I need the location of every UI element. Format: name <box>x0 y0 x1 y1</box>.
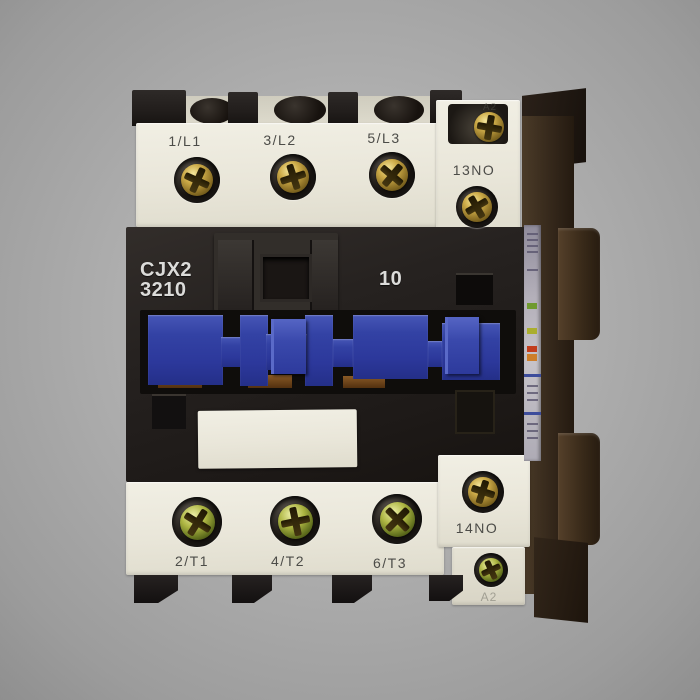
side-label-text-line <box>527 437 538 439</box>
contact-carrier-link <box>333 339 353 367</box>
side-label-text-line <box>527 430 538 432</box>
terminal-hole-2T1 <box>172 497 222 547</box>
mount-tab <box>134 575 178 603</box>
side-label-divider <box>524 412 541 415</box>
contact-carrier-tab <box>445 317 479 374</box>
phillips-screw <box>181 164 213 196</box>
coil-terminal-hole-top <box>472 110 506 144</box>
side-label-orange-mark <box>527 354 537 361</box>
mount-tab <box>332 575 372 603</box>
housing-square-recess <box>455 390 495 434</box>
phillips-screw <box>376 159 408 191</box>
aux-terminal-label-14NO: 14NO <box>456 520 499 536</box>
side-label-text-line <box>527 399 538 401</box>
phillips-screw <box>380 502 415 537</box>
clamp-screw-top <box>374 96 424 124</box>
housing-square-recess <box>260 254 312 302</box>
terminal-hole-4T2 <box>270 496 320 546</box>
side-label-text-line <box>527 251 538 253</box>
aux-terminal-hole-13NO <box>456 186 498 228</box>
side-label-yellow-mark <box>527 328 537 334</box>
side-label-text-line <box>527 423 538 425</box>
mount-tab <box>328 92 358 126</box>
terminal-hole-5L3 <box>369 152 415 198</box>
housing-boss-rib <box>310 240 338 310</box>
side-label-text-line <box>527 239 538 241</box>
contact-carrier-segment <box>353 315 428 379</box>
housing-square-hole <box>456 273 493 305</box>
contactor-product-photo: 1/L1 3/L2 5/L3 A2 13NO CJX2 3210 10 <box>126 88 604 618</box>
side-label-text-line <box>527 245 538 247</box>
side-label-red-mark <box>527 346 537 352</box>
side-spec-label <box>524 225 541 461</box>
phillips-screw <box>479 558 503 582</box>
model-text: CJX2 3210 <box>140 260 192 300</box>
phillips-screw <box>462 192 491 221</box>
phillips-screw <box>277 161 309 193</box>
contact-carrier-link <box>428 341 442 367</box>
aux-terminal-label-13NO: 13NO <box>453 162 496 178</box>
mount-tab <box>232 575 272 603</box>
terminal-label-1L1: 1/L1 <box>168 133 201 149</box>
model-line2: 3210 <box>140 280 192 300</box>
terminal-label-6T3: 6/T3 <box>373 555 407 571</box>
contact-carrier-segment <box>305 315 333 386</box>
terminal-label-2T1: 2/T1 <box>175 553 209 569</box>
clamp-screw-top <box>274 96 326 124</box>
aux-rating-text: 10 <box>379 269 402 289</box>
phillips-screw <box>474 112 505 143</box>
terminal-hole-1L1 <box>174 157 220 203</box>
terminal-label-4T2: 4/T2 <box>271 553 305 569</box>
side-label-green-mark <box>527 303 537 309</box>
side-label-text-line <box>527 385 538 387</box>
terminal-hole-3L2 <box>270 154 316 200</box>
contact-carrier-tab <box>271 319 306 374</box>
side-mount-clip-bottom <box>558 433 600 545</box>
mount-tab <box>132 90 186 126</box>
terminal-hole-6T3 <box>372 494 422 544</box>
contact-carrier-segment <box>148 315 223 385</box>
side-mount-clip-top <box>558 228 600 340</box>
aux-terminal-hole-14NO <box>462 471 504 513</box>
mount-tab <box>228 92 258 126</box>
phillips-screw <box>180 505 215 540</box>
contact-carrier-link <box>221 337 242 367</box>
side-label-text-line <box>527 233 538 235</box>
housing-boss-rib <box>218 240 254 310</box>
terminal-label-5L3: 5/L3 <box>367 130 400 146</box>
contact-carrier-segment <box>240 315 268 386</box>
coil-terminal-label-top: A2 <box>483 102 497 113</box>
phillips-screw <box>278 504 313 539</box>
coil-terminal-hole-bottom <box>474 553 508 587</box>
side-bottom-fin <box>534 537 588 623</box>
blank-label-sticker <box>198 409 358 469</box>
model-line1: CJX2 <box>140 260 192 280</box>
phillips-screw <box>468 477 497 506</box>
side-label-text-line <box>527 392 538 394</box>
coil-terminal-label-bottom: A2 <box>481 590 498 604</box>
side-label-divider <box>524 374 541 377</box>
terminal-label-3L2: 3/L2 <box>263 132 296 148</box>
housing-square-hole <box>152 394 186 429</box>
side-label-text-line <box>527 269 538 271</box>
